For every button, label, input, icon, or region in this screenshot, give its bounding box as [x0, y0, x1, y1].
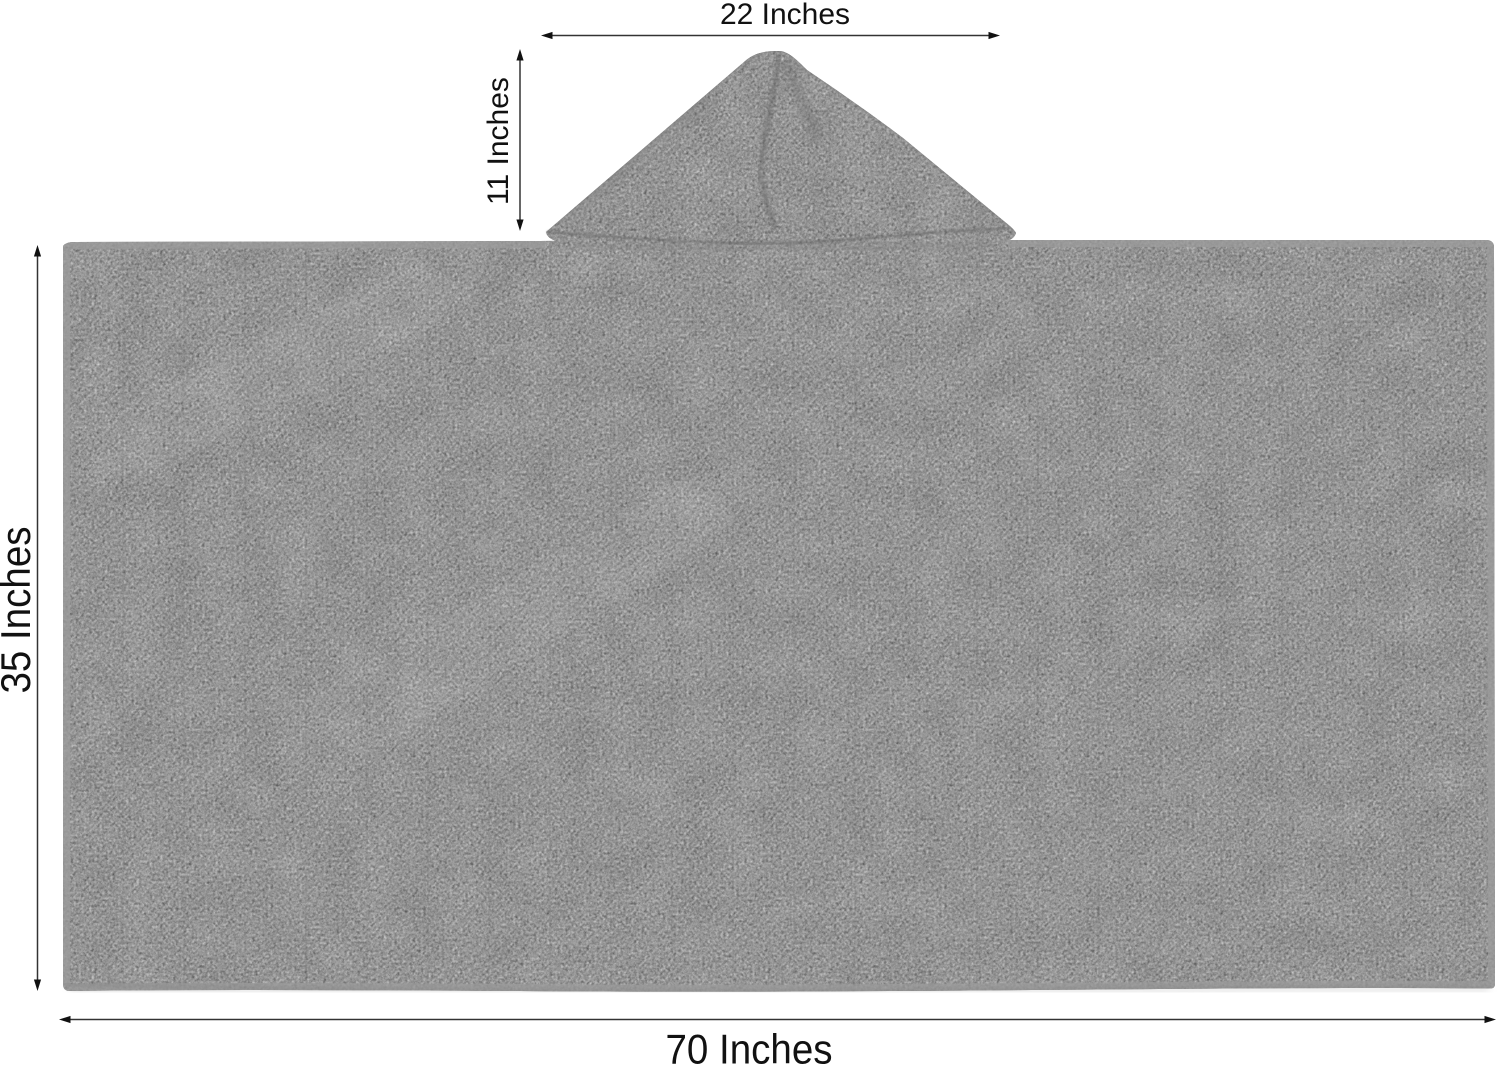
svg-text:70 Inches: 70 Inches: [666, 1026, 833, 1066]
svg-text:11 Inches: 11 Inches: [482, 77, 515, 205]
svg-text:22 Inches: 22 Inches: [720, 0, 850, 31]
svg-text:35 Inches: 35 Inches: [0, 527, 39, 694]
